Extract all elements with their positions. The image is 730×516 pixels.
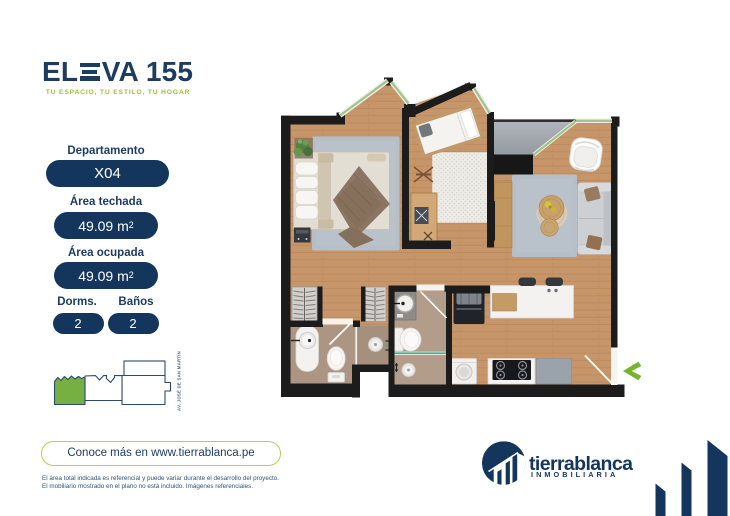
svg-text:INMOBILIARIA: INMOBILIARIA xyxy=(531,470,618,479)
